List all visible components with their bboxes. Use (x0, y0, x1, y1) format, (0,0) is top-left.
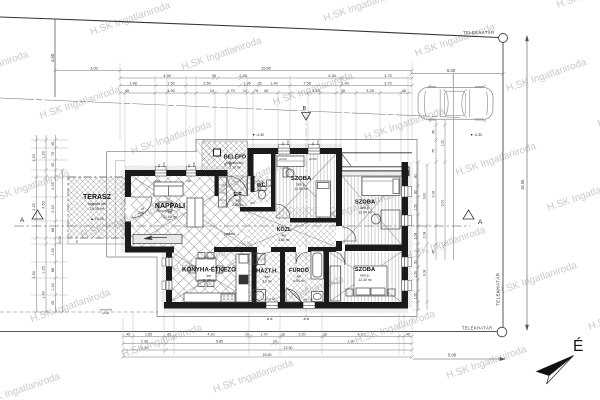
svg-text:×30: ×30 (186, 179, 191, 183)
svg-text:H.SK Ingatlaniroda: H.SK Ingatlaniroda (445, 344, 528, 382)
svg-text:▲ ±0.00: ▲ ±0.00 (90, 217, 104, 221)
svg-text:45: 45 (432, 130, 436, 134)
svg-text:12.09 m²: 12.09 m² (294, 187, 308, 191)
svg-text:1.90: 1.90 (348, 339, 355, 343)
svg-text:pm 0.60: pm 0.60 (265, 297, 276, 301)
svg-text:.25: .25 (256, 81, 261, 85)
svg-text:10: 10 (281, 332, 285, 336)
svg-text:4.10: 4.10 (358, 332, 365, 336)
svg-text:12.04 m²: 12.04 m² (358, 211, 372, 215)
svg-text:45: 45 (264, 89, 268, 93)
svg-text:KÖZL: KÖZL (277, 226, 292, 233)
svg-text:H.SK Ingatlaniroda: H.SK Ingatlaniroda (212, 358, 295, 396)
svg-text:5.00: 5.00 (448, 353, 457, 358)
svg-text:H.SK Ingatlaniroda: H.SK Ingatlaniroda (0, 168, 71, 206)
svg-text:210: 210 (228, 161, 232, 166)
svg-text:A: A (478, 219, 483, 226)
svg-text:45: 45 (341, 89, 345, 93)
svg-text:45: 45 (167, 332, 171, 336)
svg-text:padlást. →: padlást. → (224, 232, 240, 236)
svg-text:HÁZT.H.: HÁZT.H. (256, 268, 278, 275)
svg-text:4.30: 4.30 (328, 74, 335, 78)
svg-text:2.08: 2.08 (423, 232, 427, 239)
svg-text:H.SK Ingatlaniroda: H.SK Ingatlaniroda (454, 141, 537, 179)
svg-text:10: 10 (273, 339, 277, 343)
svg-text:3.30: 3.30 (32, 271, 36, 278)
svg-text:9.08: 9.08 (58, 236, 62, 243)
svg-text:45: 45 (126, 332, 130, 336)
svg-text:90: 90 (223, 162, 227, 166)
svg-text:45: 45 (402, 89, 406, 93)
svg-text:H.SK Ingatlaniroda: H.SK Ingatlaniroda (505, 57, 588, 95)
svg-text:2.20: 2.20 (299, 332, 306, 336)
svg-text:10: 10 (245, 332, 249, 336)
svg-text:4.10: 4.10 (208, 332, 215, 336)
svg-text:4.50: 4.50 (50, 53, 55, 62)
svg-text:▼ -0.30: ▼ -0.30 (470, 133, 482, 137)
svg-text:pm90: pm90 (279, 157, 287, 161)
svg-text:1.50: 1.50 (167, 81, 174, 85)
svg-text:90: 90 (281, 142, 285, 146)
svg-text:2.30: 2.30 (141, 339, 148, 343)
svg-text:5.85: 5.85 (216, 339, 223, 343)
svg-text:10: 10 (323, 332, 327, 336)
svg-text:3.70: 3.70 (384, 74, 391, 78)
svg-text:150: 150 (192, 162, 196, 167)
svg-text:250: 250 (155, 179, 160, 183)
svg-text:10: 10 (210, 89, 214, 93)
svg-text:BELÉPŐ: BELÉPŐ (224, 153, 246, 161)
svg-text:pm90: pm90 (309, 157, 317, 161)
svg-text:H.SK Ingatlaniroda: H.SK Ingatlaniroda (546, 176, 600, 214)
svg-text:75: 75 (254, 89, 258, 93)
svg-text:TELEKHATÁR: TELEKHATÁR (496, 273, 501, 306)
svg-text:H.SK Ingatlaniroda: H.SK Ingatlaniroda (0, 49, 30, 87)
svg-text:2.60: 2.60 (203, 81, 210, 85)
svg-text:45: 45 (51, 301, 55, 305)
svg-text:H.SK Ingatlaniroda: H.SK Ingatlaniroda (38, 84, 121, 122)
svg-text:90: 90 (311, 142, 315, 146)
svg-text:H.SK Ingatlaniroda: H.SK Ingatlaniroda (596, 92, 600, 130)
svg-text:1.20: 1.20 (42, 151, 46, 158)
svg-text:TERASZ: TERASZ (83, 194, 112, 201)
svg-text:1.25: 1.25 (42, 266, 46, 273)
svg-text:H.SK Ingatlaniroda: H.SK Ingatlaniroda (89, 0, 172, 38)
svg-text:vonal: vonal (102, 311, 110, 315)
svg-text:1.70: 1.70 (261, 332, 268, 336)
svg-text:15.90: 15.90 (261, 66, 271, 70)
svg-text:lam.p.: lam.p. (360, 206, 369, 210)
svg-text:1.98: 1.98 (129, 81, 136, 85)
svg-text:13.30: 13.30 (284, 346, 293, 350)
svg-text:SZOBA: SZOBA (355, 200, 376, 206)
svg-text:150: 150 (316, 140, 320, 145)
svg-text:90: 90 (157, 164, 161, 168)
svg-text:2.06: 2.06 (432, 191, 436, 198)
svg-text:1.25: 1.25 (51, 248, 55, 255)
svg-text:45: 45 (125, 89, 129, 93)
svg-text:13.30 m²: 13.30 m² (202, 279, 216, 283)
svg-text:4.04 m²: 4.04 m² (278, 238, 290, 242)
svg-text:2.35: 2.35 (239, 74, 246, 78)
svg-text:2.30: 2.30 (141, 346, 148, 350)
svg-text:30: 30 (212, 74, 216, 78)
svg-text:pm 0.80: pm 0.80 (303, 298, 314, 302)
svg-text:1.40: 1.40 (341, 81, 348, 85)
svg-text:6.00: 6.00 (447, 68, 456, 73)
svg-text:TELEKHATÁR: TELEKHATÁR (463, 30, 495, 35)
svg-text:TELEKHATÁR: TELEKHATÁR (462, 326, 493, 331)
svg-text:FÜRDŐ: FÜRDŐ (289, 267, 310, 274)
svg-text:1.43: 1.43 (312, 89, 319, 93)
svg-text:3.28: 3.28 (366, 89, 373, 93)
svg-text:H.SK Ingatlaniroda: H.SK Ingatlaniroda (0, 371, 62, 400)
svg-text:15.90: 15.90 (263, 353, 272, 357)
svg-text:H.SK Ingatlaniroda: H.SK Ingatlaniroda (363, 106, 446, 144)
svg-text:E.T.: E.T. (233, 192, 243, 198)
svg-text:H.SK Ingatlaniroda: H.SK Ingatlaniroda (322, 0, 405, 24)
svg-text:B: B (303, 106, 307, 112)
svg-text:45: 45 (51, 163, 55, 167)
svg-text:lam.p.: lam.p. (296, 183, 305, 187)
svg-text:H.SK Ingatlaniroda: H.SK Ingatlaniroda (555, 0, 600, 11)
svg-text:H.SK Ingatlaniroda: H.SK Ingatlaniroda (0, 0, 81, 3)
svg-text:▼ -0.30: ▼ -0.30 (252, 133, 264, 137)
svg-text:45: 45 (432, 250, 436, 254)
svg-text:É: É (573, 338, 583, 355)
svg-text:210: 210 (250, 201, 255, 205)
svg-text:H.SK Ingatlaniroda: H.SK Ingatlaniroda (495, 260, 578, 298)
svg-text:3.0 m²: 3.0 m² (262, 280, 272, 284)
svg-text:16.06: 16.06 (520, 179, 525, 190)
svg-text:4.60 m²: 4.60 m² (293, 279, 305, 283)
svg-text:240: 240 (138, 211, 144, 215)
svg-text:3.70: 3.70 (384, 81, 391, 85)
svg-text:1.40: 1.40 (270, 81, 277, 85)
svg-text:H.SK Ingatlaniroda: H.SK Ingatlaniroda (354, 309, 437, 347)
svg-text:H.SK Ingatlaniroda: H.SK Ingatlaniroda (587, 295, 600, 333)
svg-text:1.70: 1.70 (227, 89, 234, 93)
svg-text:150: 150 (286, 140, 290, 145)
svg-text:lam.p.: lam.p. (360, 274, 369, 278)
svg-text:A: A (20, 217, 25, 224)
svg-text:SZOBA: SZOBA (355, 267, 376, 273)
svg-text:1.20: 1.20 (32, 154, 36, 161)
svg-text:1.65: 1.65 (145, 332, 152, 336)
svg-text:3.08: 3.08 (423, 270, 427, 277)
svg-text:3.00: 3.00 (90, 66, 97, 70)
svg-text:21.60 m²: 21.60 m² (163, 215, 177, 219)
svg-text:4.90: 4.90 (167, 89, 174, 93)
svg-text:2.25: 2.25 (32, 203, 36, 210)
svg-text:45: 45 (406, 332, 410, 336)
svg-text:150: 150 (162, 162, 166, 167)
svg-text:7.58: 7.58 (303, 81, 310, 85)
svg-text:NAPPALI: NAPPALI (155, 203, 185, 210)
svg-text:KONYHA-ÉTKEZŐ: KONYHA-ÉTKEZŐ (182, 266, 236, 274)
svg-text:75: 75 (75, 240, 79, 244)
svg-text:10: 10 (243, 89, 247, 93)
svg-text:1.40: 1.40 (51, 283, 55, 290)
svg-text:SZOBA: SZOBA (291, 176, 312, 182)
svg-text:4.50: 4.50 (42, 201, 46, 208)
svg-text:2.40: 2.40 (51, 205, 55, 212)
svg-text:2.88 m²: 2.88 m² (232, 203, 244, 207)
svg-text:ø ø: ø ø (304, 317, 310, 321)
svg-text:1.20: 1.20 (441, 140, 445, 147)
svg-text:68: 68 (51, 228, 55, 232)
svg-text:fagyálló ker: fagyálló ker (88, 202, 107, 206)
svg-text:68: 68 (51, 268, 55, 272)
svg-text:3.60: 3.60 (423, 193, 427, 200)
svg-text:10.35 m²: 10.35 m² (90, 207, 105, 211)
svg-text:ø ø: ø ø (267, 317, 273, 321)
svg-text:75: 75 (51, 152, 55, 156)
svg-text:WC: WC (257, 183, 266, 189)
svg-text:3.00: 3.00 (441, 200, 445, 207)
svg-text:45: 45 (51, 142, 55, 146)
svg-text:12.30 m²: 12.30 m² (358, 278, 372, 282)
svg-text:H.SK Ingatlaniroda: H.SK Ingatlaniroda (180, 35, 263, 73)
svg-text:2.25: 2.25 (51, 182, 55, 189)
svg-text:H.SK Ingatlaniroda: H.SK Ingatlaniroda (413, 22, 496, 60)
svg-text:75: 75 (432, 149, 436, 153)
svg-text:90: 90 (187, 164, 191, 168)
